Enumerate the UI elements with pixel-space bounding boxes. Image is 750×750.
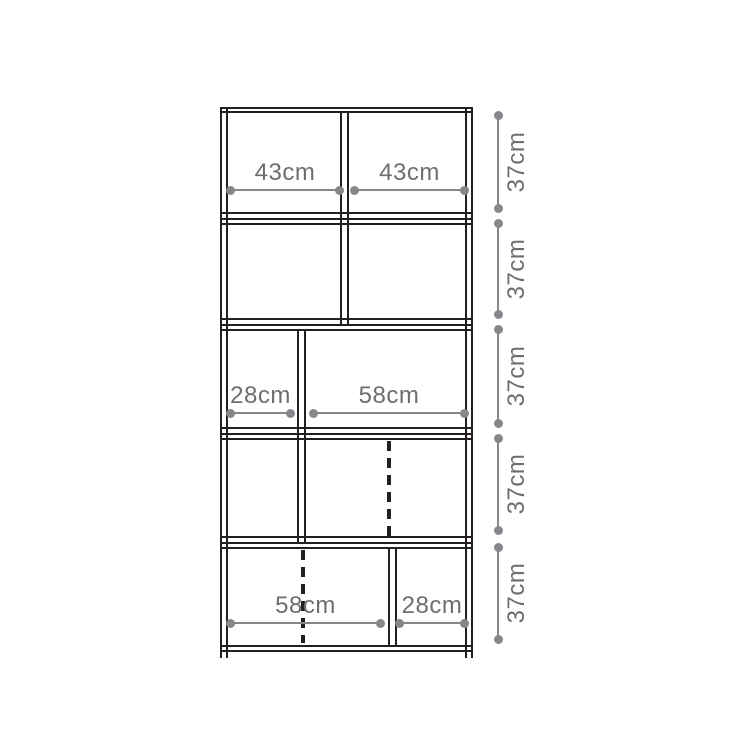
dim-line-row3-left <box>228 412 293 414</box>
dim-line-row5-right <box>397 622 467 624</box>
dim-line-height-5 <box>497 545 499 642</box>
divider-rows-1-2 <box>340 112 349 326</box>
dim-label-row5-right: 28cm <box>397 591 467 621</box>
divider-row-5 <box>388 548 397 646</box>
dim-endpoint <box>494 325 503 334</box>
dim-endpoint <box>494 219 503 228</box>
dim-line-height-1 <box>497 113 499 211</box>
dim-endpoint <box>376 619 385 628</box>
dim-label-height-3: 37cm <box>503 336 531 416</box>
dim-label-height-4: 37cm <box>503 444 531 524</box>
dim-endpoint <box>226 186 235 195</box>
dim-label-row3-right: 58cm <box>311 381 467 411</box>
dim-label-row3-left: 28cm <box>228 381 293 411</box>
dim-endpoint <box>335 186 344 195</box>
cabinet-bottom-frame <box>220 645 473 652</box>
dim-line-row5-left <box>228 622 383 624</box>
shelf-dimension-diagram: 43cm 43cm 28cm 58cm 58cm 28cm 37cm 37cm … <box>0 0 750 750</box>
shelf-3-edge <box>220 433 473 440</box>
dim-endpoint <box>286 409 295 418</box>
dim-line-height-3 <box>497 327 499 426</box>
dim-label-row1-right: 43cm <box>352 158 467 188</box>
dim-label-height-5: 37cm <box>503 553 531 633</box>
dim-endpoint <box>350 186 359 195</box>
shelf-3-top-line <box>222 427 471 429</box>
dim-label-row5-left: 58cm <box>228 591 383 621</box>
dim-line-row1-right <box>352 189 467 191</box>
dim-line-height-2 <box>497 221 499 317</box>
dim-endpoint <box>226 409 235 418</box>
dim-line-row1-left <box>228 189 342 191</box>
dashed-divider-row-4 <box>387 441 391 536</box>
shelf-4-edge <box>220 542 473 549</box>
dim-endpoint <box>494 419 503 428</box>
dim-endpoint <box>494 635 503 644</box>
dim-endpoint <box>494 543 503 552</box>
dim-endpoint <box>460 186 469 195</box>
dim-endpoint <box>494 111 503 120</box>
dim-endpoint <box>309 409 318 418</box>
divider-rows-3-4 <box>297 330 306 544</box>
dim-endpoint <box>460 619 469 628</box>
dim-endpoint <box>460 409 469 418</box>
dim-endpoint <box>226 619 235 628</box>
dim-endpoint <box>494 204 503 213</box>
dim-endpoint <box>494 526 503 535</box>
dim-endpoint <box>494 434 503 443</box>
dim-label-row1-left: 43cm <box>228 158 342 188</box>
dim-line-row3-right <box>311 412 467 414</box>
dim-endpoint <box>395 619 404 628</box>
dim-endpoint <box>494 310 503 319</box>
dim-label-height-1: 37cm <box>503 122 531 202</box>
shelf-4-top-line <box>222 536 471 538</box>
dim-line-height-4 <box>497 436 499 533</box>
dim-label-height-2: 37cm <box>503 229 531 309</box>
